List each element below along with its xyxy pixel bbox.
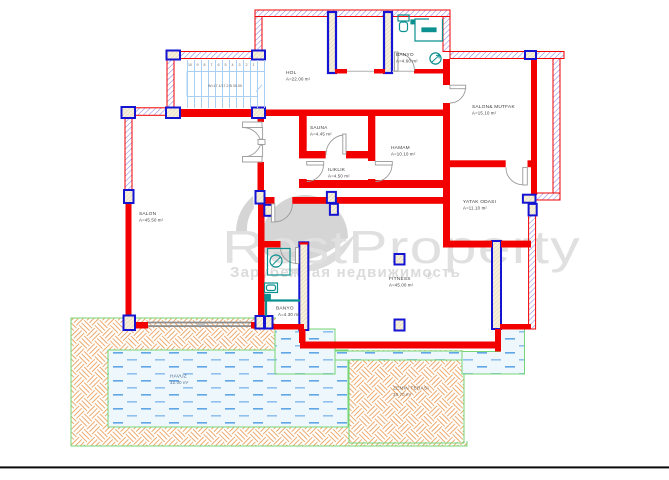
- svg-text:38.70 m²: 38.70 m²: [393, 392, 412, 397]
- svg-text:SALON: SALON: [139, 211, 157, 217]
- svg-text:6: 6: [218, 63, 220, 67]
- svg-text:ILIKLIK: ILIKLIK: [328, 167, 346, 173]
- svg-text:®: ®: [426, 271, 433, 281]
- svg-text:1: 1: [253, 63, 255, 67]
- svg-text:2: 2: [246, 63, 248, 67]
- svg-text:A=4.45 m²: A=4.45 m²: [310, 132, 332, 137]
- svg-text:A=15.10 m²: A=15.10 m²: [472, 111, 497, 116]
- svg-text:A=22.00 m²: A=22.00 m²: [286, 77, 311, 82]
- svg-text:9: 9: [197, 63, 199, 67]
- svg-text:FITNESS: FITNESS: [389, 276, 411, 282]
- svg-text:5: 5: [225, 63, 227, 67]
- svg-text:8: 8: [204, 63, 206, 67]
- svg-text:A=45.00 m²: A=45.00 m²: [389, 283, 414, 288]
- svg-text:3: 3: [239, 63, 241, 67]
- svg-text:SAUNA: SAUNA: [310, 125, 328, 131]
- svg-text:HAVUZ: HAVUZ: [170, 374, 187, 380]
- svg-text:YATAK ODASI: YATAK ODASI: [463, 199, 496, 205]
- svg-text:A=11.10 m²: A=11.10 m²: [463, 206, 487, 211]
- svg-text:4: 4: [232, 63, 234, 67]
- svg-text:ZEMIN TERASI: ZEMIN TERASI: [393, 386, 429, 392]
- svg-text:SALON& MUTFAK: SALON& MUTFAK: [472, 104, 515, 110]
- svg-text:BANYO: BANYO: [396, 52, 414, 58]
- svg-text:A=10.10 m²: A=10.10 m²: [391, 152, 416, 157]
- svg-text:A=4.60 m²: A=4.60 m²: [396, 59, 418, 64]
- svg-text:W=17.1/17.2 B 30.00: W=17.1/17.2 B 30.00: [208, 84, 242, 88]
- svg-text:10: 10: [188, 63, 192, 67]
- svg-text:A=4.50 m²: A=4.50 m²: [328, 174, 350, 179]
- svg-text:BANYO: BANYO: [276, 306, 294, 312]
- svg-text:A=4.30 m²: A=4.30 m²: [278, 312, 300, 317]
- svg-text:A=45.50 m²: A=45.50 m²: [139, 218, 164, 223]
- svg-text:7: 7: [211, 63, 213, 67]
- svg-text:32.00 m²: 32.00 m²: [170, 380, 189, 385]
- svg-text:HOL: HOL: [286, 70, 297, 76]
- svg-text:HAMAM: HAMAM: [391, 145, 410, 151]
